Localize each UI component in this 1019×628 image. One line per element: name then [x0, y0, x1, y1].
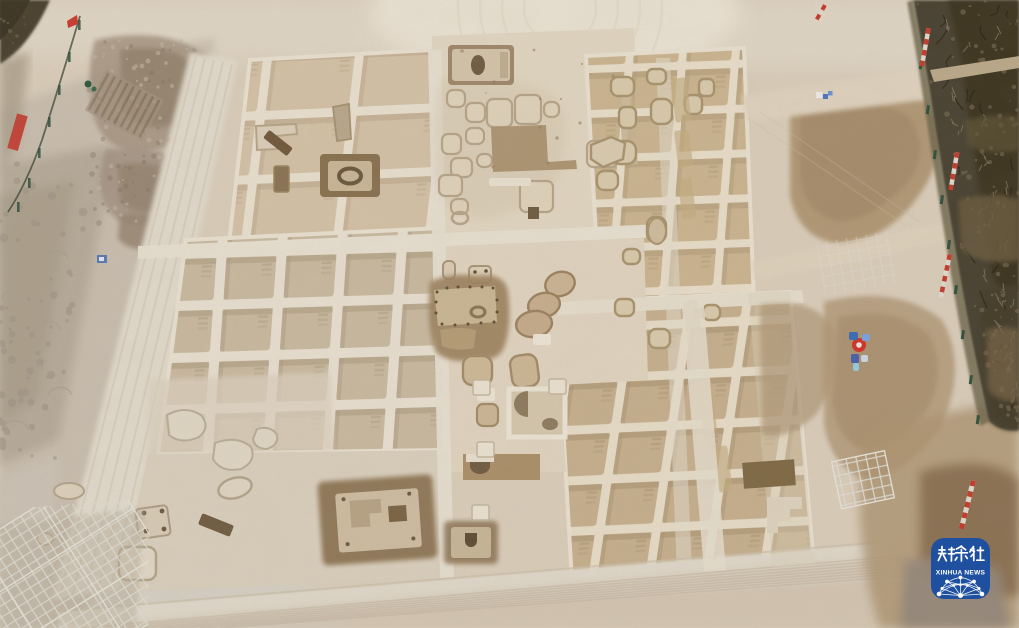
svg-text:XINHUA NEWS: XINHUA NEWS	[936, 570, 986, 577]
